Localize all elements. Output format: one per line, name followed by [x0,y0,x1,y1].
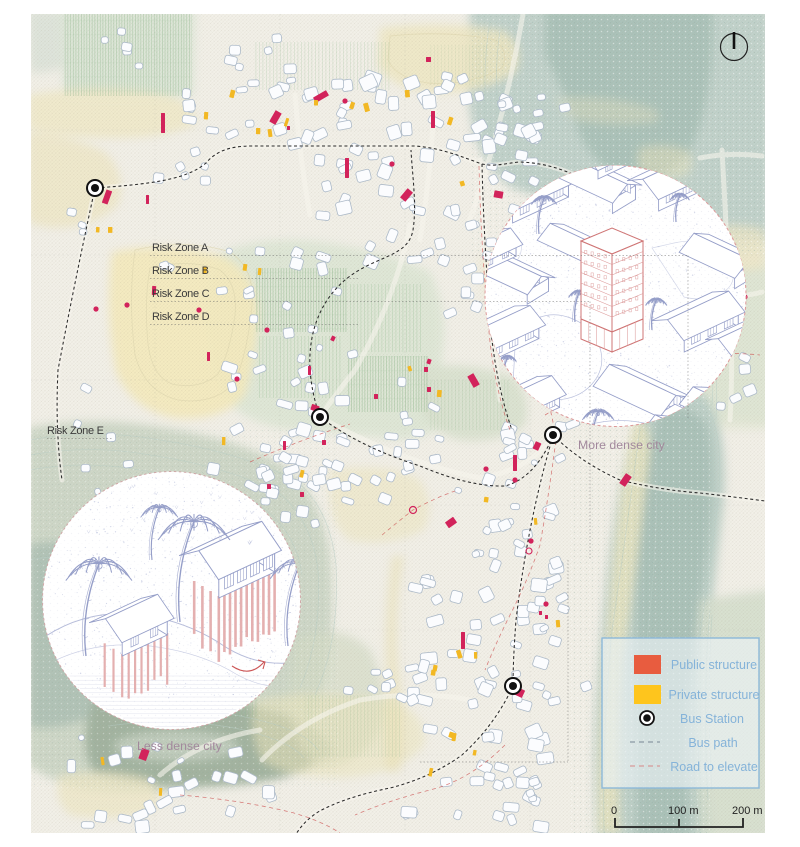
svg-text:Bus path: Bus path [688,736,737,750]
svg-text:100 m: 100 m [668,805,699,817]
svg-text:Bus Station: Bus Station [680,712,744,726]
svg-text:Risk Zone B: Risk Zone B [152,265,209,277]
svg-text:Risk Zone C: Risk Zone C [152,288,210,300]
svg-text:Risk Zone E: Risk Zone E [47,425,104,437]
svg-text:0: 0 [611,805,617,817]
svg-text:200 m: 200 m [732,805,763,817]
svg-text:Road to elevate: Road to elevate [670,760,758,774]
svg-text:Risk Zone D: Risk Zone D [152,311,210,323]
svg-text:More dense city: More dense city [578,438,666,452]
svg-text:Less dense city: Less dense city [137,739,223,753]
svg-text:Private structure: Private structure [668,688,759,702]
svg-text:Public structure: Public structure [671,658,757,672]
svg-text:Risk Zone A: Risk Zone A [152,242,209,254]
